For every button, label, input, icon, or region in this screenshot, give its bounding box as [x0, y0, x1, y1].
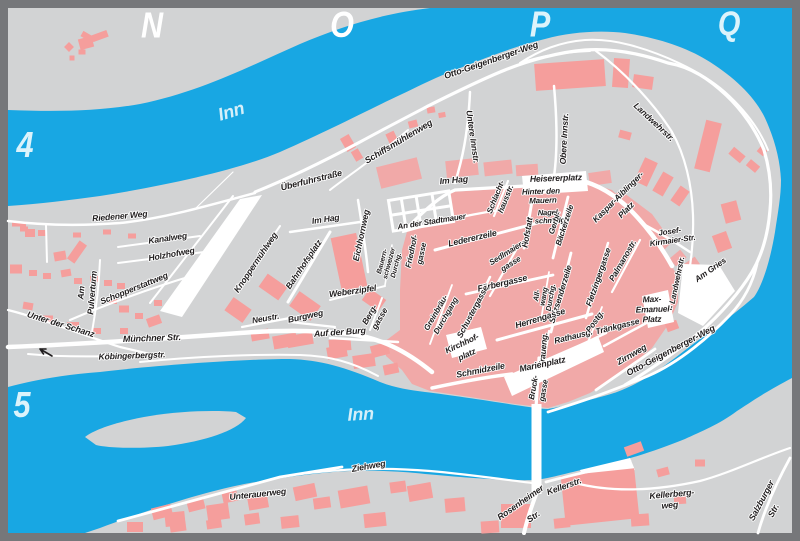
- svg-text:Inn: Inn: [347, 403, 375, 424]
- svg-text:Münchner Str.: Münchner Str.: [123, 332, 181, 344]
- svg-text:weg: weg: [661, 499, 679, 510]
- svg-text:P: P: [530, 5, 551, 45]
- svg-text:4: 4: [16, 126, 34, 166]
- svg-text:Platz: Platz: [642, 314, 662, 325]
- svg-text:Mauern: Mauern: [529, 196, 557, 206]
- svg-text:N: N: [141, 6, 164, 46]
- svg-text:5: 5: [14, 386, 31, 426]
- svg-text:Heisererplatz: Heisererplatz: [530, 172, 583, 184]
- svg-text:O: O: [330, 6, 354, 46]
- svg-text:Q: Q: [718, 4, 741, 43]
- svg-text:Max-: Max-: [642, 294, 661, 305]
- svg-text:Am: Am: [75, 285, 86, 301]
